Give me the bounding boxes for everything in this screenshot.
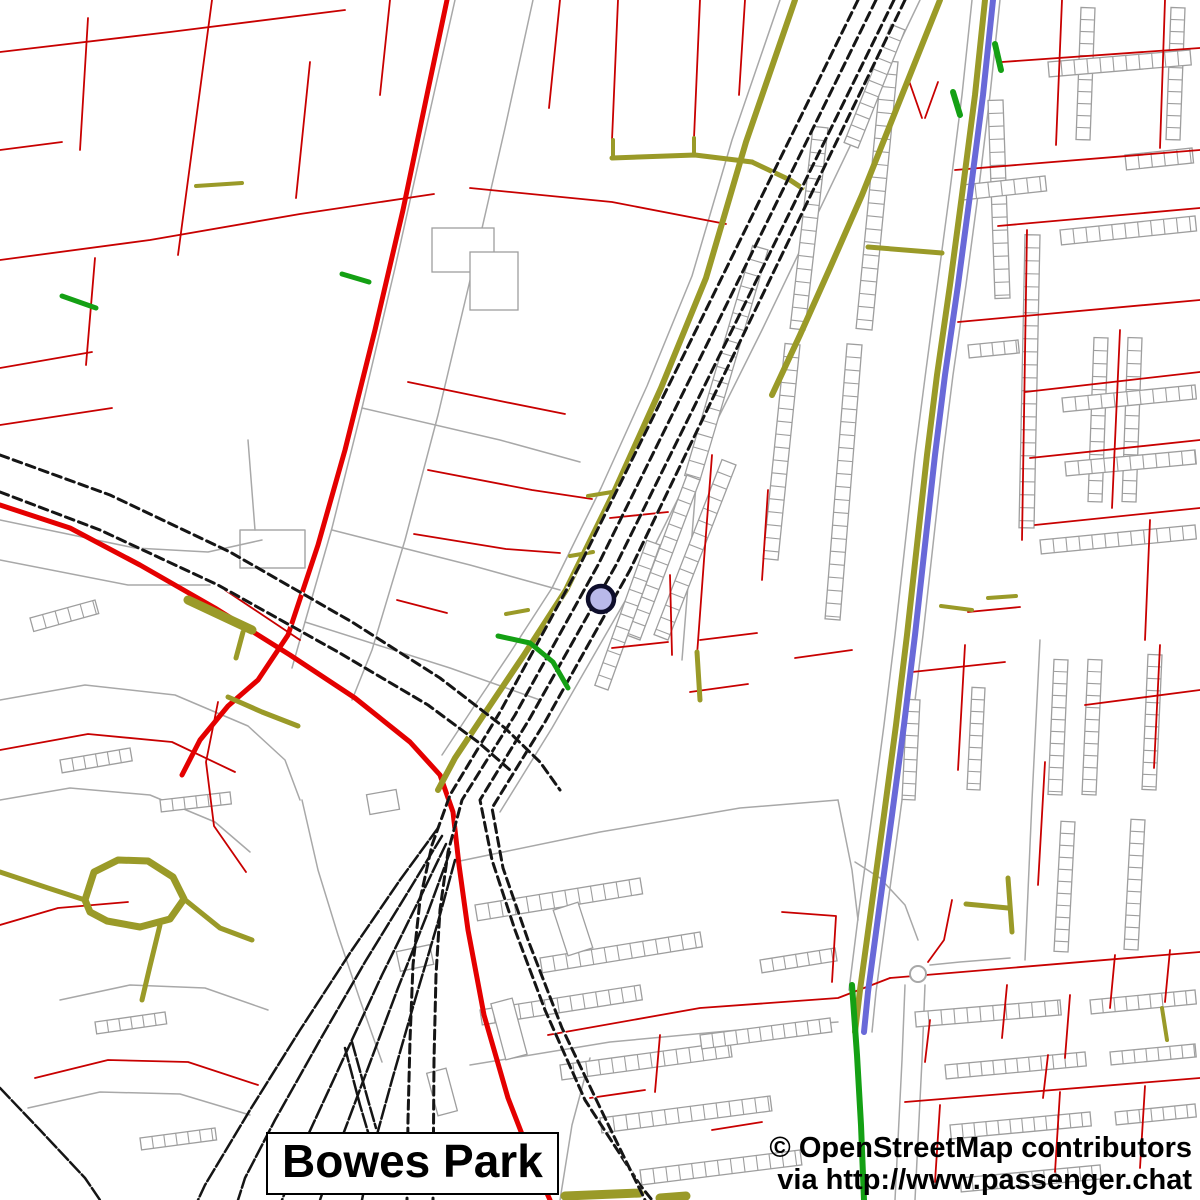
map-canvas[interactable] bbox=[0, 0, 1200, 1200]
map-svg[interactable] bbox=[0, 0, 1200, 1200]
attribution-line1: © OpenStreetMap contributors bbox=[769, 1132, 1192, 1164]
map-marker[interactable] bbox=[588, 586, 614, 612]
place-label: Bowes Park bbox=[266, 1132, 559, 1195]
roundabout bbox=[910, 966, 926, 982]
attribution-line2: via http://www.passenger.chat bbox=[769, 1164, 1192, 1196]
attribution: © OpenStreetMap contributors via http://… bbox=[769, 1132, 1192, 1196]
